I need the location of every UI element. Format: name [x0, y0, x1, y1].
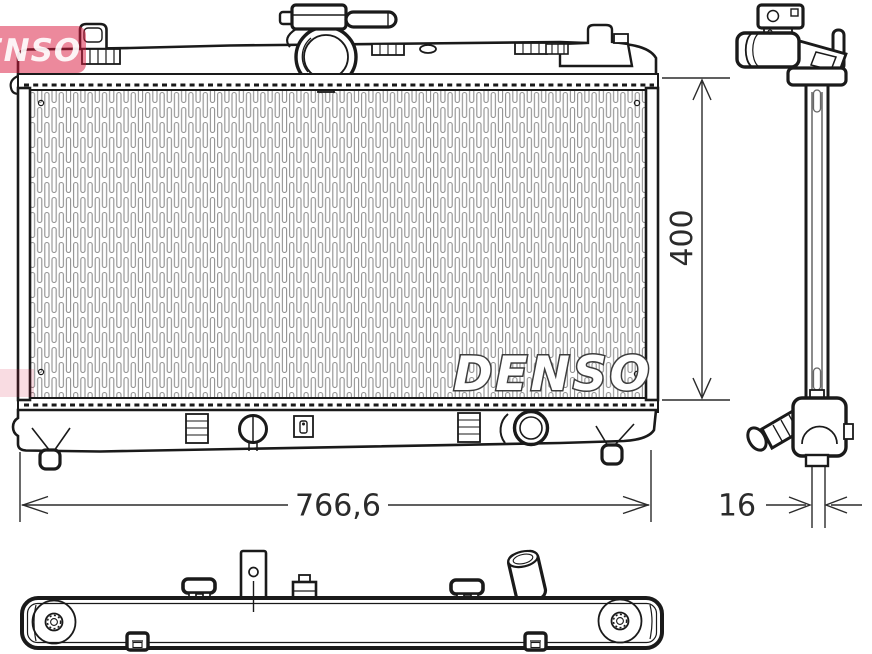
bottom-tank-rib-block-left	[186, 414, 208, 443]
denso-logo-text: DENSO	[0, 33, 81, 69]
denso-watermark: DENSO	[453, 347, 652, 402]
radiator-technical-drawing: 400 766,6 16	[0, 0, 872, 654]
dimension-width-label: 766,6	[295, 489, 381, 524]
top-tank-ribs-mid	[372, 44, 404, 55]
radiator-side-view	[737, 5, 853, 466]
bottom-tank-rib-block-right	[458, 413, 480, 442]
top-header-plate	[18, 74, 658, 90]
drawing-canvas: 400 766,6 16	[0, 0, 872, 654]
side-view-core-profile	[806, 85, 828, 401]
dimension-height: 400	[662, 78, 730, 400]
dimension-depth: 16	[718, 464, 862, 528]
bottom-view-clip-e	[525, 633, 546, 650]
side-view-top-fitting	[737, 5, 846, 91]
dimension-height-label: 400	[665, 209, 700, 266]
top-tank-ribs-right	[515, 43, 547, 54]
side-view-bottom-fitting	[744, 390, 853, 466]
bottom-view-pipe-stub	[507, 548, 547, 603]
bottom-view-tank-body	[22, 598, 662, 648]
dimension-depth-label: 16	[718, 489, 756, 524]
dimension-width: 766,6	[20, 450, 651, 524]
sensor-boss	[294, 416, 313, 437]
bottom-view-clip-d	[127, 633, 148, 650]
tank-vent-hole	[420, 45, 436, 53]
radiator-bottom-view	[22, 548, 662, 650]
bottom-tank	[13, 410, 656, 452]
top-right-mount-pin	[546, 25, 632, 66]
denso-logo-faint-stamp	[0, 369, 34, 397]
